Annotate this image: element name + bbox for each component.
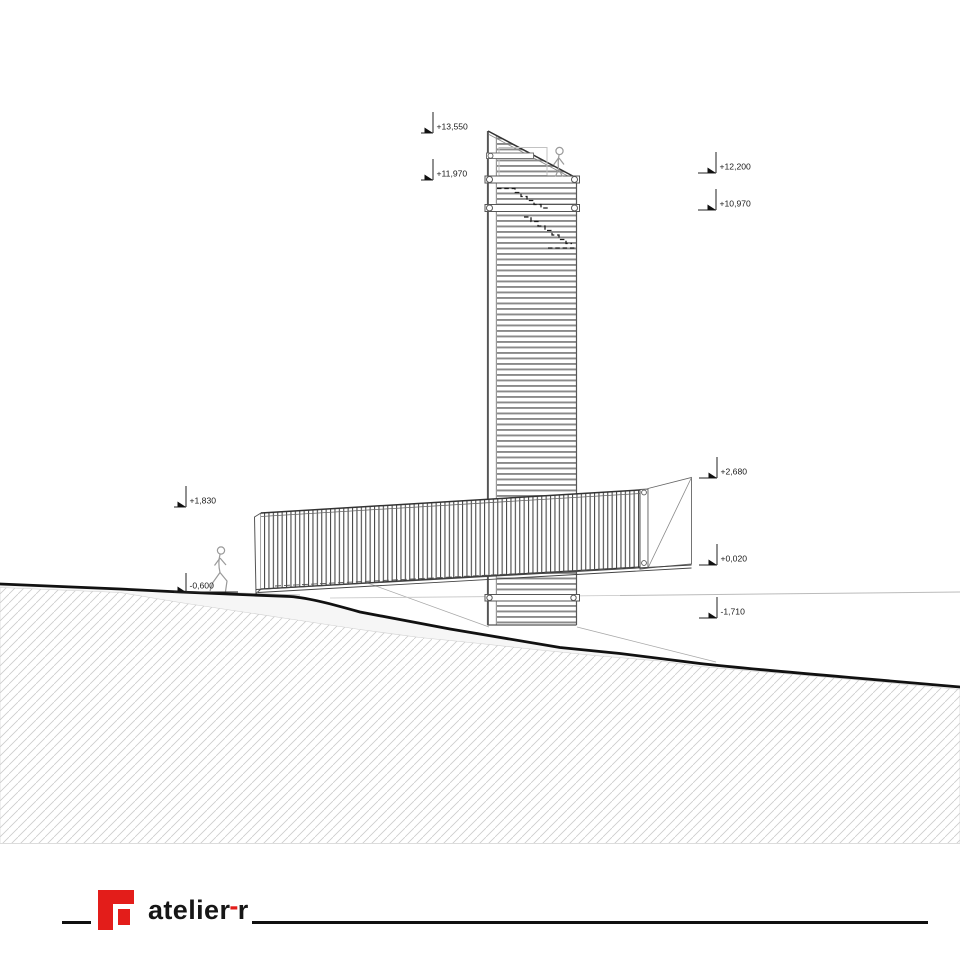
floor-slab-2: [485, 205, 580, 212]
elevation-marker: +11,970: [421, 159, 467, 180]
elevation-marker: +12,200: [698, 152, 751, 173]
elevation-marker: +10,970: [698, 189, 751, 210]
terrain-line-right: [620, 592, 960, 596]
elevation-label: +0,020: [721, 554, 748, 564]
elevation-label: -0,600: [190, 581, 215, 591]
elevation-label: +1,830: [190, 496, 217, 506]
elevation-label: +10,970: [720, 199, 752, 209]
elevation-marker: +1,830: [174, 486, 216, 507]
bridge-ramp: [255, 478, 692, 594]
elevation-marker: +2,680: [699, 457, 747, 478]
bridge-end-wedge: [648, 478, 692, 569]
bridge-right-post: [640, 489, 648, 569]
section-drawing: +13,550 +11,970 +12,200 +10,970: [0, 0, 960, 960]
elevation-label: -1,710: [721, 607, 746, 617]
upper-floor-slab: [487, 153, 534, 159]
elevation-label: +2,680: [721, 467, 748, 477]
elevation-label: +11,970: [437, 169, 468, 179]
elevation-marker: +0,020: [699, 544, 747, 565]
floor-slab-1: [485, 176, 580, 183]
ground-terrain: [0, 581, 960, 844]
base-slab: [485, 595, 580, 602]
bridge-left-post: [255, 513, 262, 594]
elevation-label: +13,550: [437, 122, 469, 132]
elevation-marker: -0,600: [174, 573, 238, 592]
ground-hatch: [0, 588, 960, 844]
elevation-label: +12,200: [720, 162, 752, 172]
architectural-section-sheet: +13,550 +11,970 +12,200 +10,970: [0, 0, 960, 960]
elevation-marker: +13,550: [421, 112, 468, 133]
elevation-marker: -1,710: [699, 597, 745, 618]
